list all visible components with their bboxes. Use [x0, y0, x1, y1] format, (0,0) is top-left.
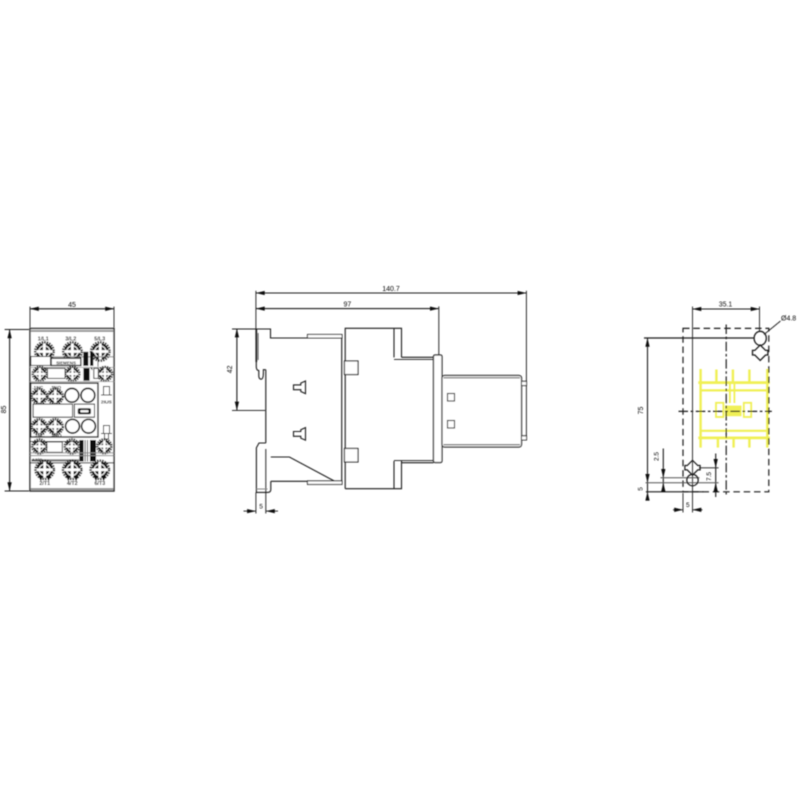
svg-text:85: 85 — [1, 406, 8, 414]
svg-text:5: 5 — [259, 503, 263, 510]
svg-text:140.7: 140.7 — [382, 286, 400, 293]
svg-text:2IUS: 2IUS — [101, 399, 113, 405]
svg-text:.4NO: .4NO — [50, 433, 61, 439]
svg-text:2/T1: 2/T1 — [39, 481, 50, 487]
svg-text:Ø4.8: Ø4.8 — [781, 315, 796, 322]
svg-text:5: 5 — [686, 502, 690, 509]
svg-text:6/T3: 6/T3 — [95, 481, 106, 487]
svg-text:75: 75 — [638, 407, 645, 415]
svg-text:SIEMENS: SIEMENS — [56, 360, 76, 365]
svg-text:45: 45 — [68, 302, 76, 309]
svg-text:4/T2: 4/T2 — [67, 481, 78, 487]
svg-text:5: 5 — [638, 487, 645, 491]
svg-text:2.5: 2.5 — [654, 452, 661, 461]
svg-text:A2/C: A2/C — [32, 458, 43, 463]
svg-text:42: 42 — [227, 365, 234, 373]
svg-text:7.5: 7.5 — [706, 472, 713, 481]
svg-text:35.1: 35.1 — [719, 302, 733, 309]
svg-text:.2NC: .2NC — [34, 433, 45, 439]
svg-text:97: 97 — [344, 302, 352, 309]
